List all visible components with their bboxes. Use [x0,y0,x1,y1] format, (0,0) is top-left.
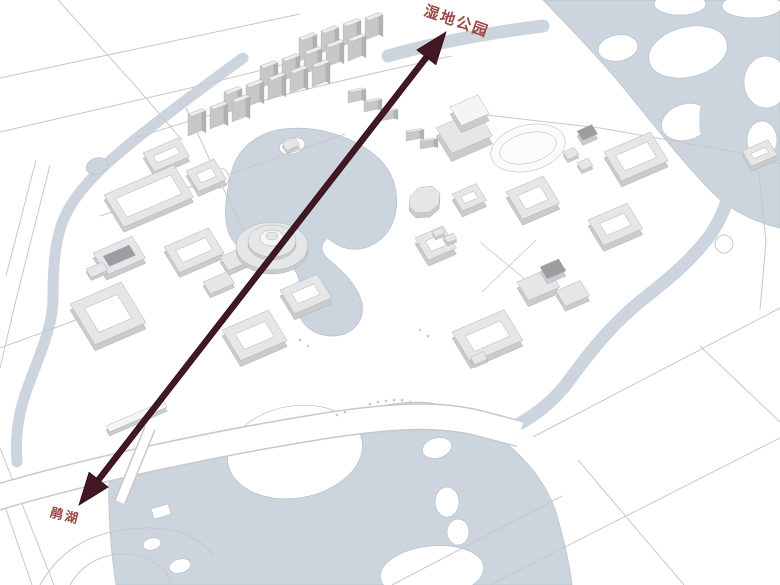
small-building [86,262,108,281]
masterplan-svg: 湿地公园 鹃湖 [0,0,780,585]
lake-island [435,487,459,517]
wetland-park-water [543,0,780,228]
water-bodies [16,0,780,585]
small-building [563,147,579,162]
college-complex [556,281,590,312]
roundabout-east [715,235,733,253]
hall-building [452,184,487,217]
college-complex [452,310,523,369]
masterplan-canvas: 湿地公园 鹃湖 [0,0,780,585]
academic-quad [104,165,194,232]
academic-quad [604,132,668,187]
label-juan-lake: 鹃湖 [49,505,82,527]
academic-block [203,272,235,298]
small-building [577,158,593,173]
dorm-quad [186,159,226,196]
tower-cluster [188,13,438,150]
college-quad [70,282,146,351]
octagon-building [409,186,440,218]
academic-quad [588,203,643,251]
lake-island [447,519,469,545]
college-quad [222,310,287,367]
academic-quad [164,228,224,278]
stadium-track [486,116,571,179]
academic-quad [506,176,560,225]
building-rotunda [236,222,308,274]
